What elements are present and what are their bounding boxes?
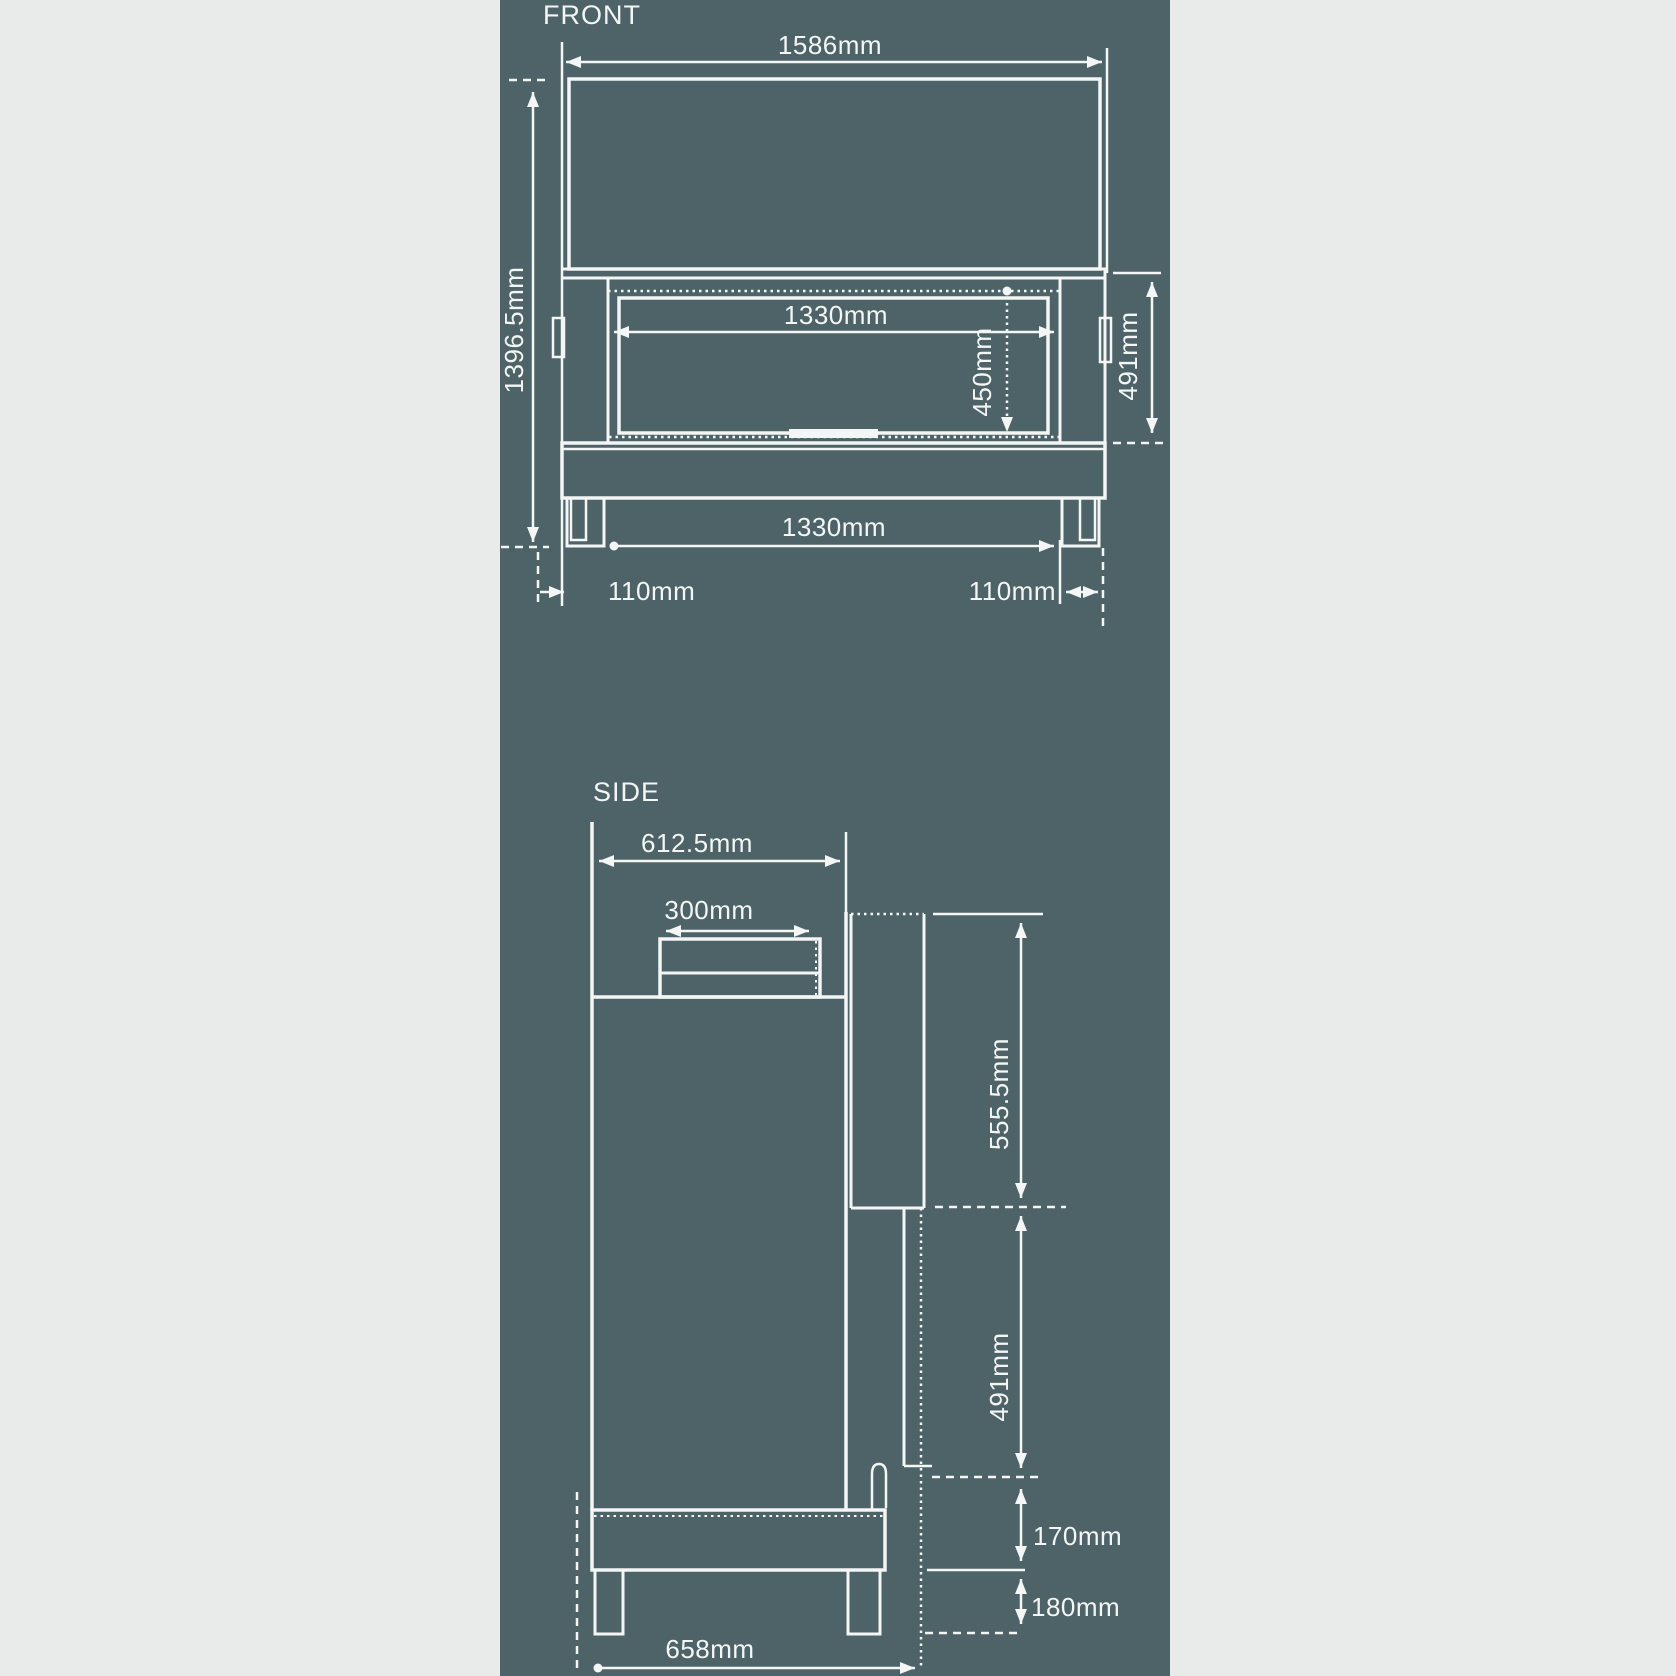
- front-left-leg-value: 110mm: [608, 576, 695, 606]
- side-overall-depth-value: 658mm: [665, 1634, 754, 1664]
- diagram-panel-background: [500, 0, 1170, 1676]
- front-opening-width-value: 1330mm: [784, 300, 888, 330]
- front-firebox-height-value: 491mm: [1113, 311, 1143, 400]
- front-overall-width-value: 1586mm: [778, 30, 882, 60]
- side-base-height-value: 180mm: [1031, 1592, 1120, 1622]
- front-opening-height-value: 450mm: [967, 327, 997, 416]
- side-firebox-height-value: 491mm: [984, 1332, 1014, 1421]
- front-right-leg-value: 110mm: [969, 576, 1056, 606]
- screenshot-canvas: FRONT 1586mm 1396.5mm: [0, 0, 1676, 1676]
- front-view-label: FRONT: [543, 0, 641, 30]
- front-base-inner-width-value: 1330mm: [782, 512, 886, 542]
- side-rear-duct-height-value: 555.5mm: [984, 1038, 1014, 1150]
- side-view-label: SIDE: [593, 777, 660, 807]
- front-burner-strip: [789, 429, 878, 438]
- front-overall-height-value: 1396.5mm: [499, 267, 529, 394]
- dimension-diagram: FRONT 1586mm 1396.5mm: [0, 0, 1676, 1676]
- side-flue-depth-value: 300mm: [664, 895, 753, 925]
- side-top-depth-value: 612.5mm: [641, 828, 753, 858]
- side-hearth-height-value: 170mm: [1033, 1521, 1122, 1551]
